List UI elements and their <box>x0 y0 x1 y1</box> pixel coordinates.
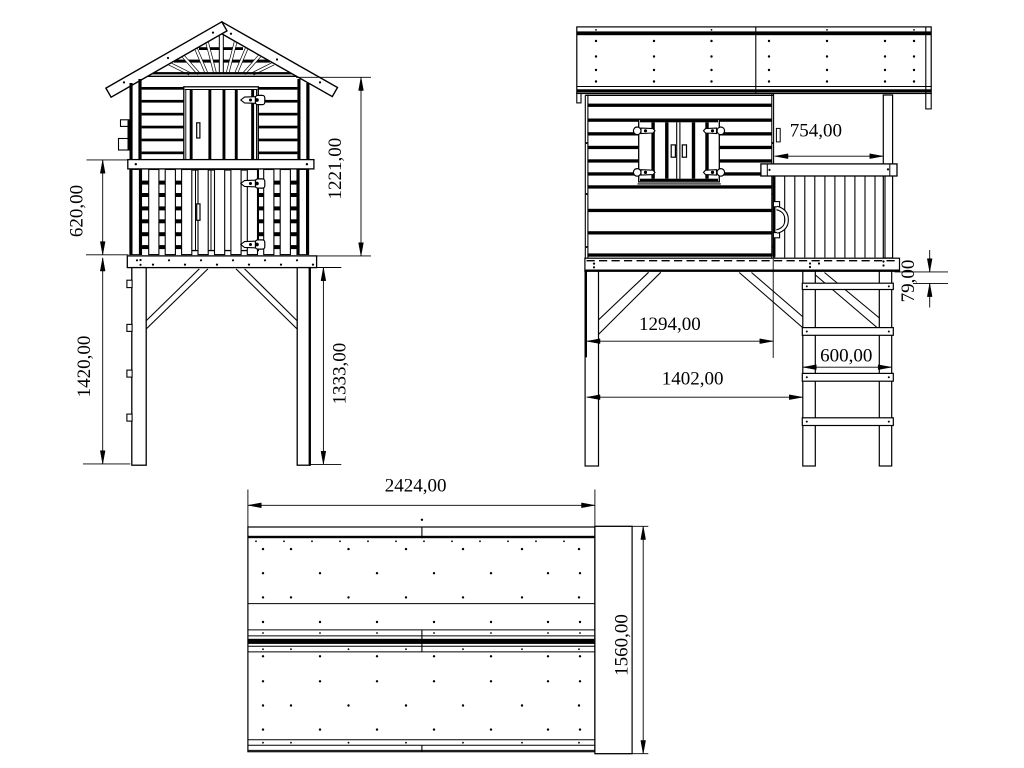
svg-text:1221,00: 1221,00 <box>325 138 346 200</box>
svg-text:1294,00: 1294,00 <box>639 314 701 335</box>
svg-text:2424,00: 2424,00 <box>385 475 447 496</box>
svg-text:1402,00: 1402,00 <box>662 368 724 389</box>
svg-text:1333,00: 1333,00 <box>330 343 351 405</box>
svg-text:620,00: 620,00 <box>67 185 88 237</box>
svg-text:1420,00: 1420,00 <box>74 336 95 398</box>
svg-text:754,00: 754,00 <box>790 120 842 141</box>
svg-text:1560,00: 1560,00 <box>611 614 632 676</box>
svg-text:600,00: 600,00 <box>820 346 872 367</box>
svg-text:79,00: 79,00 <box>898 260 919 303</box>
